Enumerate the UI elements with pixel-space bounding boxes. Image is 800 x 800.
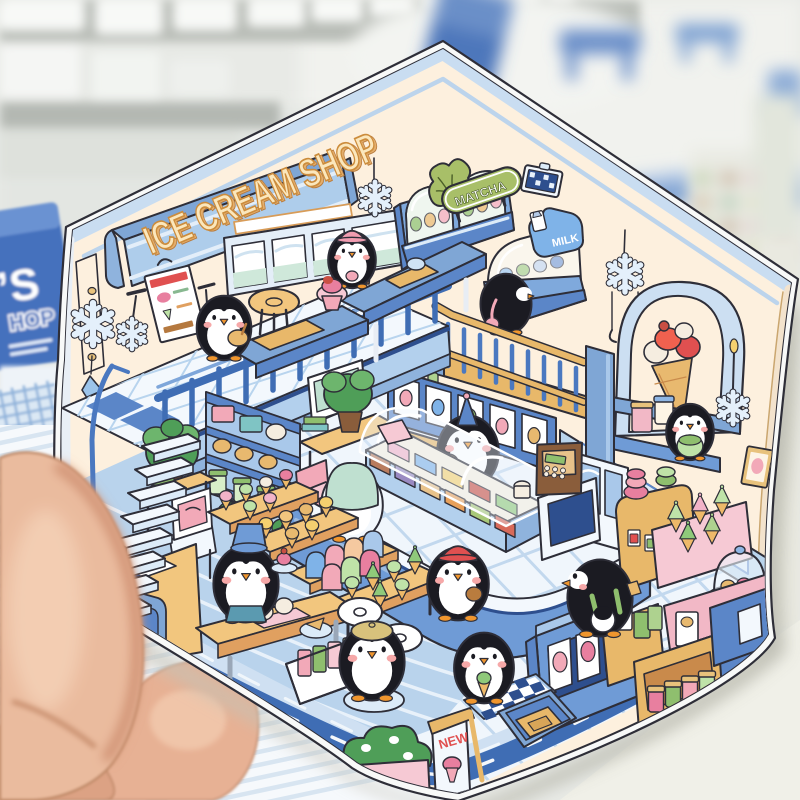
svg-text:’S: ’S — [0, 259, 43, 314]
